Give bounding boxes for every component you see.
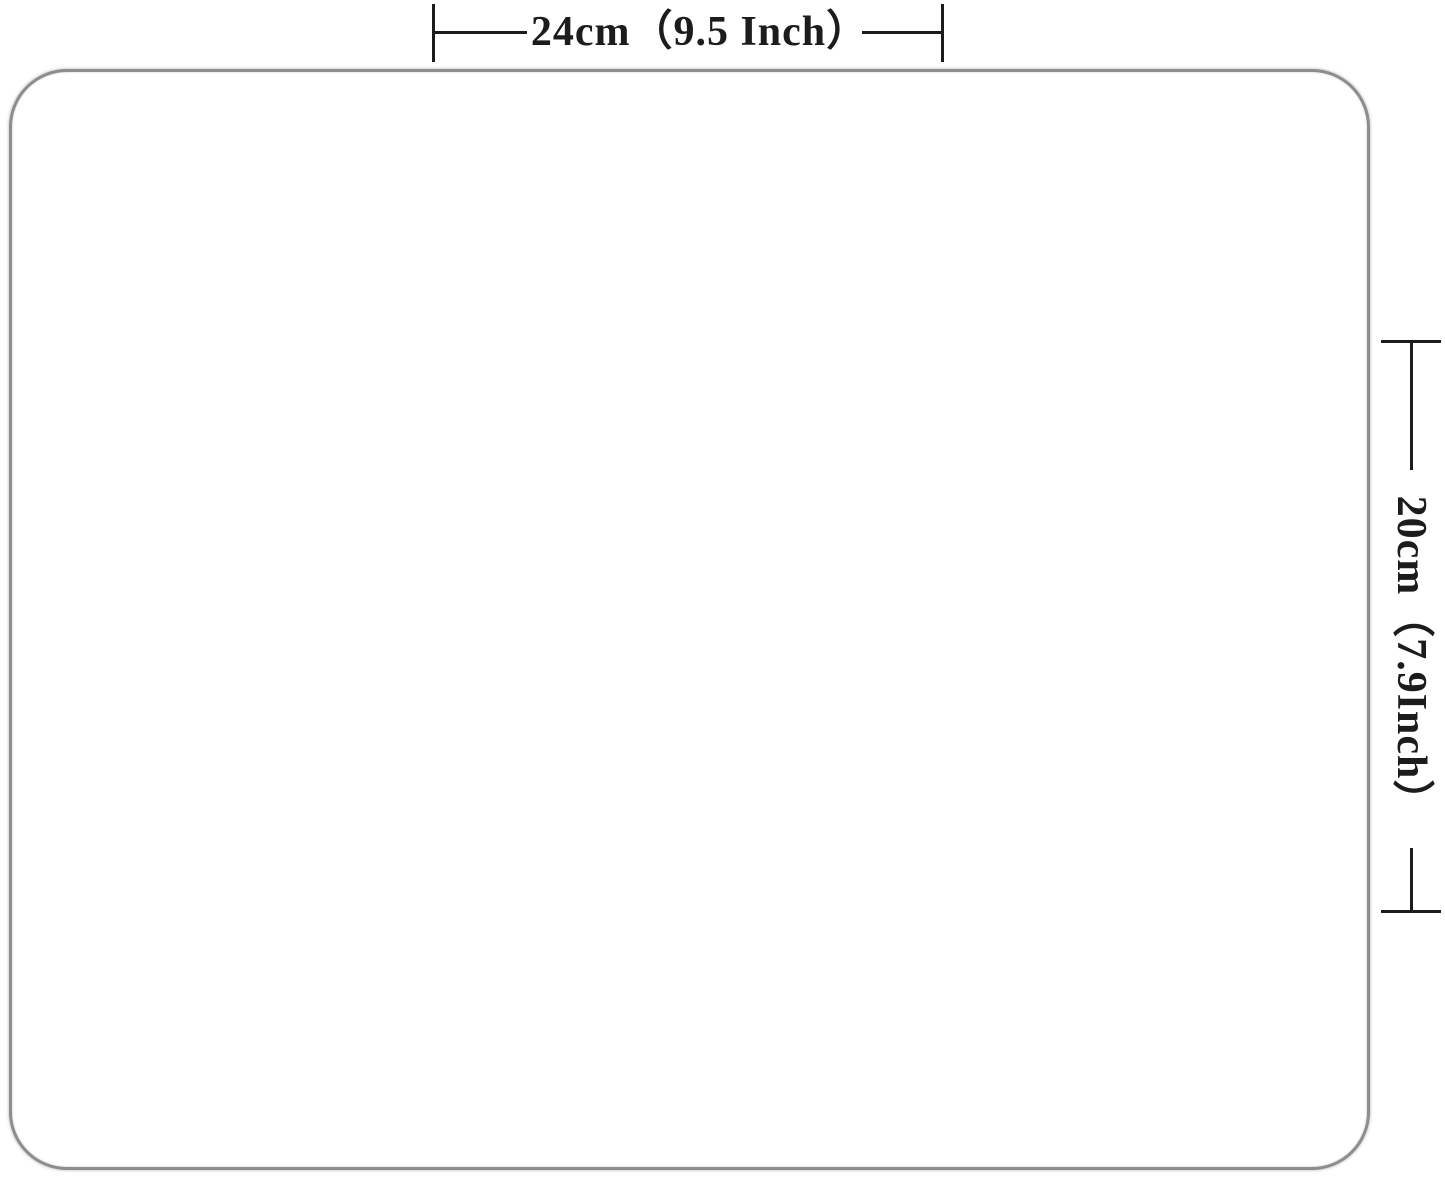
height-dimension-line-top <box>1410 342 1413 470</box>
width-dimension-label-text: 24cm（9.5 Inch） <box>527 11 873 53</box>
height-dimension-label-text: 20cm（7.9Inch） <box>1390 490 1432 829</box>
dimension-diagram: 24cm（9.5 Inch） 20cm（7.9Inch） <box>0 0 1445 1178</box>
height-dimension-line-bottom <box>1410 848 1413 912</box>
width-dimension-line-right <box>862 31 944 34</box>
height-dimension-bottom-tick <box>1381 910 1441 913</box>
width-dimension-line-left <box>434 31 538 34</box>
width-dimension-label: 24cm（9.5 Inch） <box>536 4 864 60</box>
width-dimension-right-tick <box>941 4 944 62</box>
mousepad-outline <box>9 69 1370 1170</box>
